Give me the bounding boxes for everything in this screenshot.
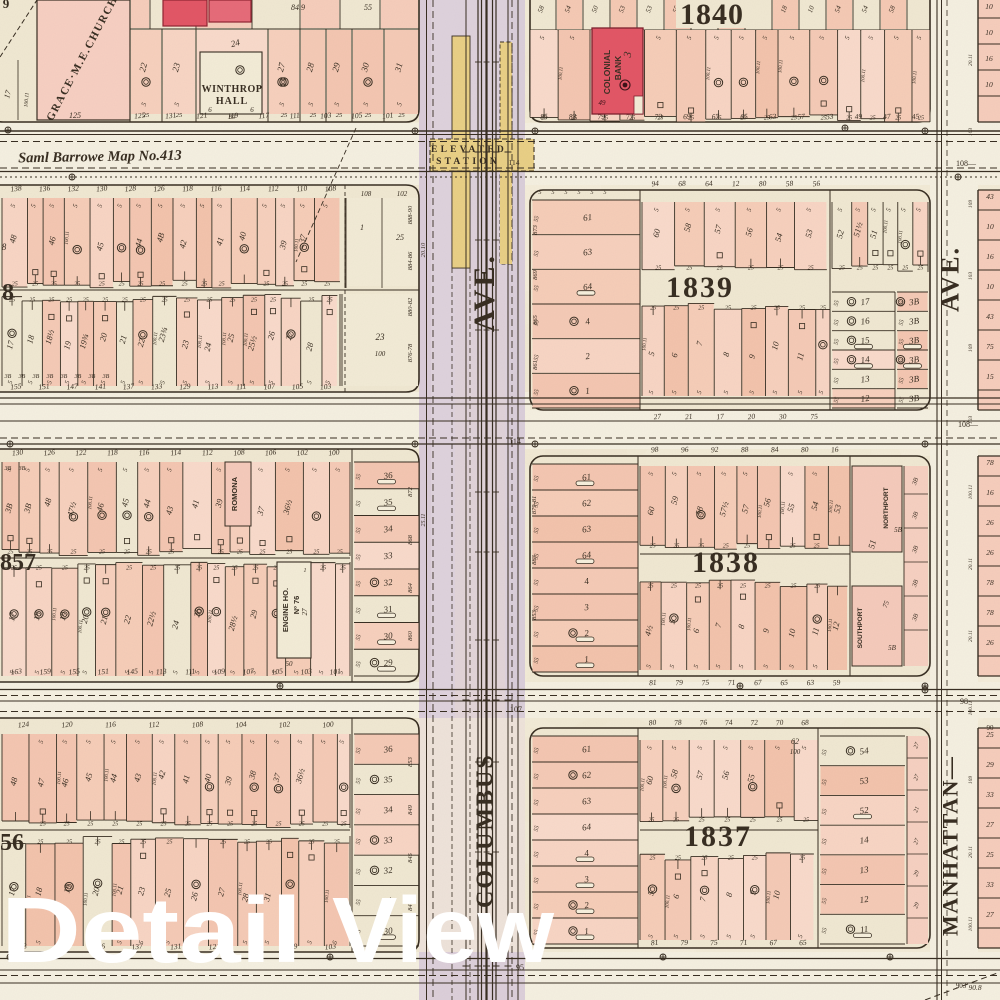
svg-text:Detail: Detail: [1, 878, 302, 982]
svg-text:View: View: [332, 878, 555, 982]
